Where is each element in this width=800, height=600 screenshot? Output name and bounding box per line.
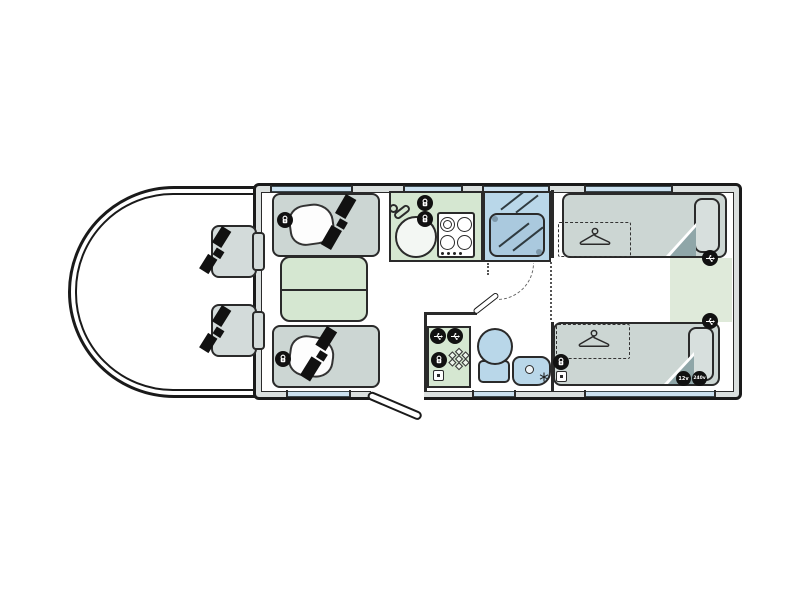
wall-tick bbox=[349, 390, 351, 397]
hanger-icon bbox=[576, 329, 612, 351]
usb-point-icon bbox=[447, 328, 463, 344]
tv-point-dot bbox=[560, 375, 563, 378]
wall-tick bbox=[472, 390, 474, 397]
window-bedroom-bottom bbox=[585, 391, 715, 397]
wall-tick bbox=[286, 390, 288, 397]
window-bedroom-top bbox=[585, 186, 672, 192]
tv-point-dot bbox=[437, 374, 440, 377]
hob-knob bbox=[441, 252, 444, 255]
hob-knob bbox=[453, 252, 456, 255]
washroom-wall-horizontal bbox=[424, 312, 477, 315]
socket-230v-icon bbox=[417, 195, 433, 211]
burner-ring bbox=[443, 220, 452, 229]
socket-230v-icon bbox=[417, 211, 433, 227]
tv-point-icon bbox=[556, 371, 567, 382]
window-lounge-bottom bbox=[287, 391, 350, 397]
shower-roller-dot bbox=[492, 216, 498, 222]
cab-inner-wall bbox=[75, 193, 257, 391]
window-lounge-top bbox=[271, 186, 352, 192]
hob-knob bbox=[459, 252, 462, 255]
hob-burner bbox=[457, 217, 472, 232]
wall-tick bbox=[584, 390, 586, 397]
hanger-icon bbox=[577, 227, 613, 249]
usb-point-icon bbox=[702, 313, 718, 329]
cab-seat-bottom-headrest bbox=[252, 311, 265, 350]
divider-dotted-line bbox=[550, 262, 552, 320]
wall-tick bbox=[584, 185, 586, 192]
hob-burner bbox=[440, 235, 455, 250]
socket-230v-icon bbox=[277, 212, 293, 228]
wall-tick bbox=[351, 185, 353, 192]
tap-knob-icon bbox=[389, 204, 398, 213]
basin-tap-icon bbox=[539, 372, 549, 382]
shower-roller-dot bbox=[536, 249, 542, 255]
table-leaf-divider bbox=[282, 289, 366, 291]
wall-tick bbox=[714, 390, 716, 397]
wall-tick bbox=[514, 390, 516, 397]
socket-240v-badge: 240v bbox=[692, 371, 707, 386]
wall-tick bbox=[671, 185, 673, 192]
socket-230v-icon bbox=[275, 351, 291, 367]
divider-dotted-line bbox=[487, 263, 489, 275]
motorhome-floorplan: 12v 240v bbox=[0, 0, 800, 600]
hob-knob bbox=[447, 252, 450, 255]
usb-point-icon bbox=[430, 328, 446, 344]
tv-point-icon bbox=[433, 370, 444, 381]
usb-point-icon bbox=[702, 250, 718, 266]
rear-dressing-floor bbox=[670, 258, 732, 322]
socket-12v-badge: 12v bbox=[676, 371, 691, 386]
heater-snowflake-icon bbox=[447, 347, 471, 371]
wall-tick bbox=[270, 185, 272, 192]
bed-pillow bbox=[694, 198, 720, 253]
bedroom-wall-top bbox=[551, 190, 554, 258]
hob-burner bbox=[457, 235, 472, 250]
hob-burner bbox=[440, 217, 455, 232]
toilet-bowl bbox=[477, 328, 513, 365]
socket-230v-icon bbox=[431, 352, 447, 368]
basin-drain bbox=[525, 365, 534, 374]
window-washroom-bottom bbox=[473, 391, 515, 397]
lounge-table bbox=[280, 256, 368, 322]
socket-230v-icon bbox=[553, 354, 569, 370]
cab-seat-top-headrest bbox=[252, 232, 265, 271]
